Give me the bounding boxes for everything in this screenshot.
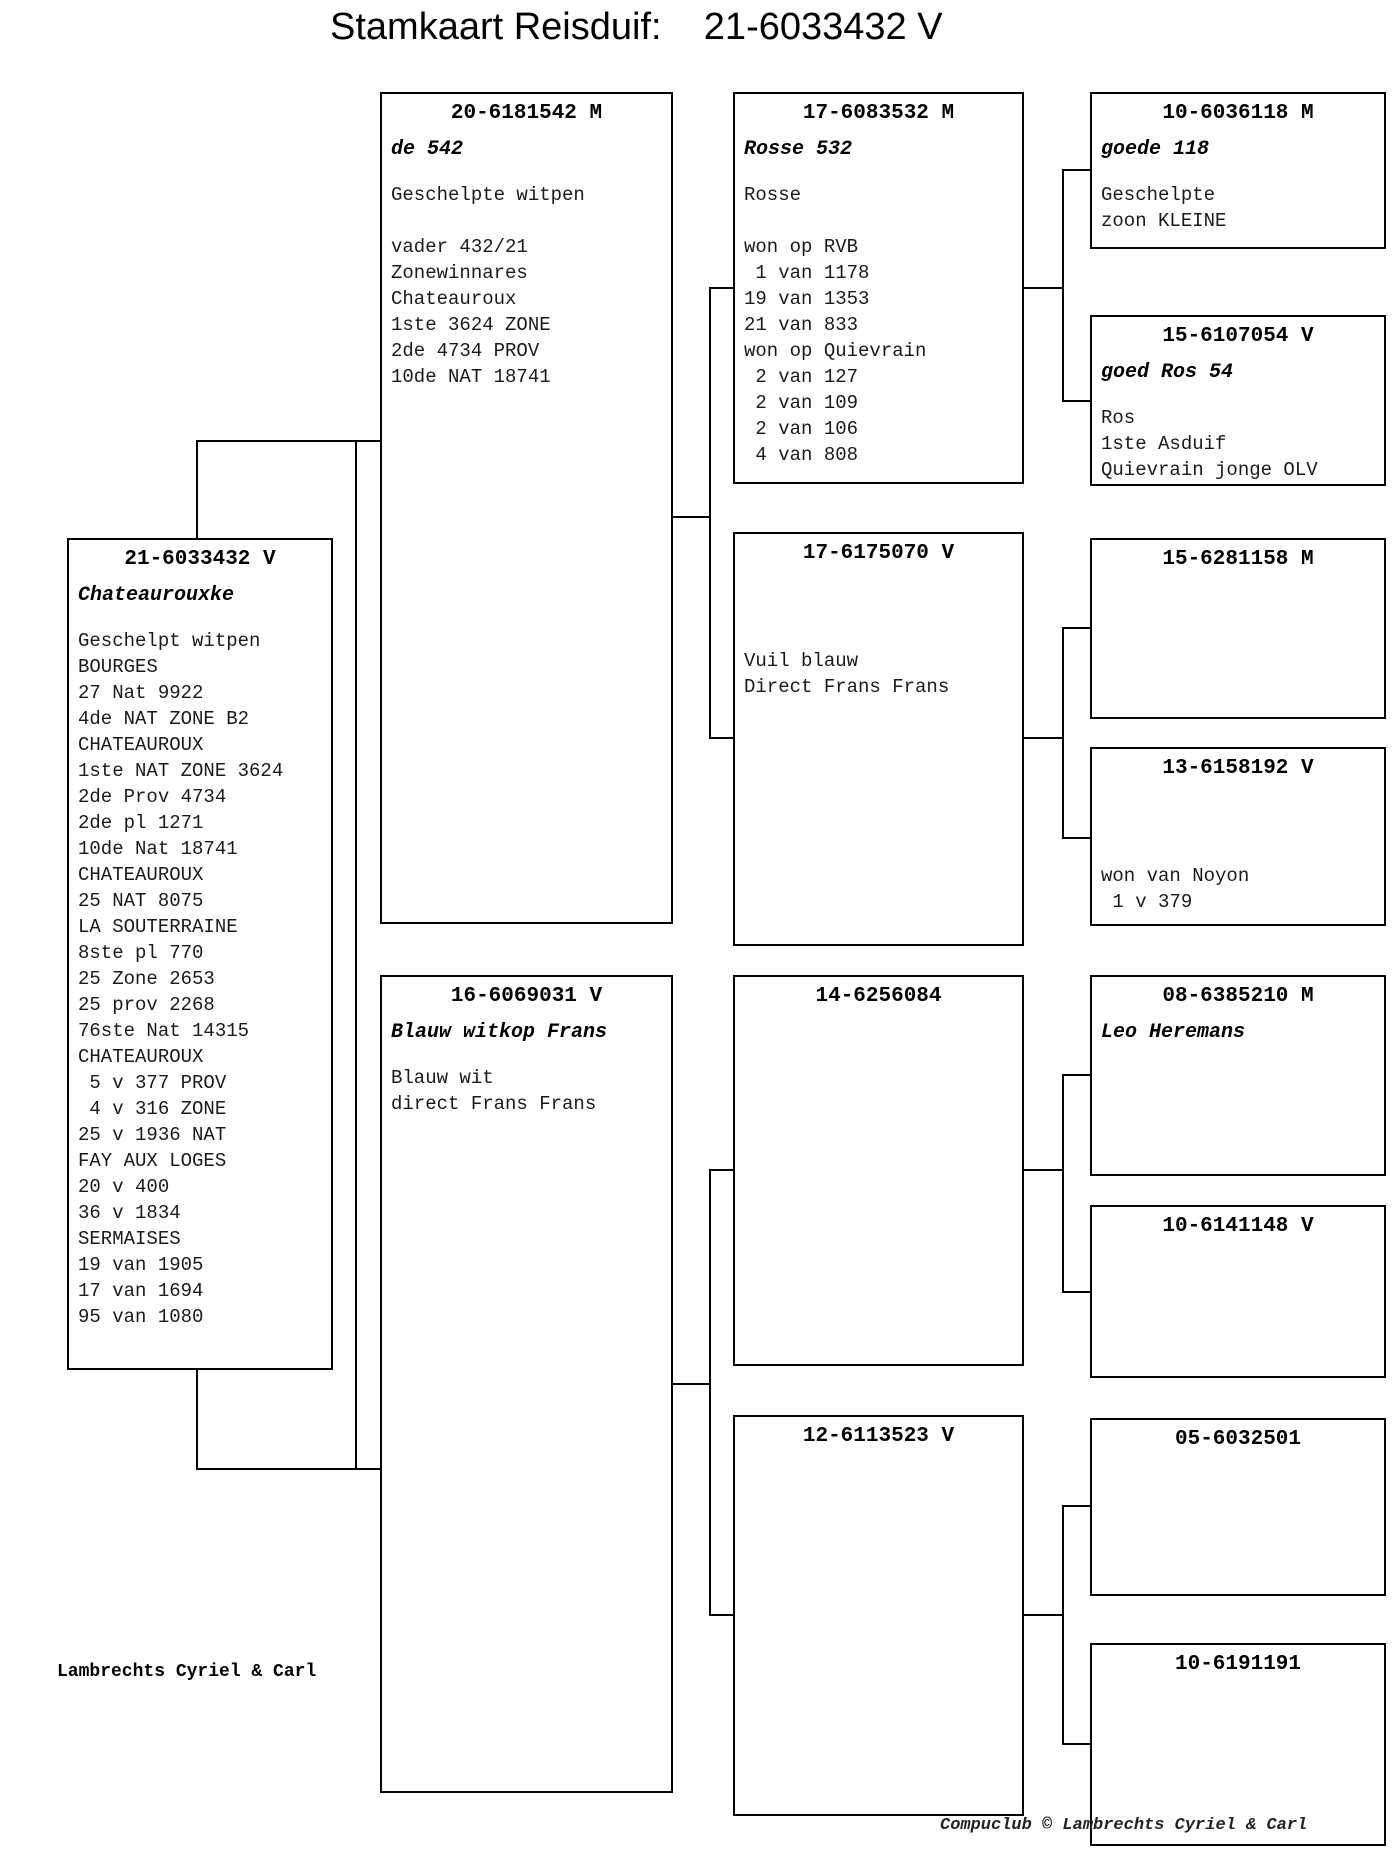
pedigree-box-sd-sire: 15-6281158 M <box>1090 538 1386 719</box>
connector-line <box>673 1383 711 1385</box>
pedigree-box-dd-sire: 05-6032501 <box>1090 1418 1386 1596</box>
pigeon-name: goed Ros 54 <box>1101 361 1233 384</box>
connector-line <box>196 1370 198 1470</box>
pigeon-results: Vuil blauw Direct Frans Frans <box>744 622 1020 700</box>
pigeon-results: Geschelpt witpen BOURGES 27 Nat 9922 4de… <box>78 628 329 1330</box>
pedigree-box-sire-sire: 17-6083532 M Rosse 532 Rosse won op RVB … <box>733 92 1024 484</box>
pigeon-results: Geschelpte zoon KLEINE <box>1101 182 1382 234</box>
connector-line <box>709 1169 733 1171</box>
connector-line <box>1024 737 1062 739</box>
pedigree-box-subject: 21-6033432 V Chateaurouxke Geschelpt wit… <box>67 538 333 1370</box>
connector-line <box>709 287 733 289</box>
pigeon-results: won van Noyon 1 v 379 <box>1101 837 1382 915</box>
ring-number: 17-6083532 M <box>735 102 1022 125</box>
ring-number: 10-6141148 V <box>1092 1215 1384 1238</box>
ring-number: 15-6281158 M <box>1092 548 1384 571</box>
connector-line <box>709 1169 711 1616</box>
ring-number: 12-6113523 V <box>735 1425 1022 1448</box>
ring-number: 16-6069031 V <box>382 985 671 1008</box>
ring-number: 15-6107054 V <box>1092 325 1384 348</box>
pedigree-box-sd-dam: 13-6158192 V won van Noyon 1 v 379 <box>1090 747 1386 926</box>
connector-line <box>1062 1505 1090 1507</box>
ring-number: 21-6033432 V <box>69 548 331 571</box>
connector-line <box>196 1468 380 1470</box>
ring-number: 13-6158192 V <box>1092 757 1384 780</box>
pigeon-results: Ros 1ste Asduif Quievrain jonge OLV <box>1101 405 1382 483</box>
connector-line <box>196 440 380 442</box>
pigeon-name: Rosse 532 <box>744 138 852 161</box>
connector-line <box>1024 1614 1062 1616</box>
pedigree-box-ds-dam: 10-6141148 V <box>1090 1205 1386 1378</box>
pedigree-box-ds-sire: 08-6385210 M Leo Heremans <box>1090 975 1386 1176</box>
connector-line <box>1062 1074 1064 1293</box>
software-credit: Compuclub © Lambrechts Cyriel & Carl <box>940 1816 1307 1835</box>
pigeon-name: Blauw witkop Frans <box>391 1021 607 1044</box>
pigeon-name: goede 118 <box>1101 138 1209 161</box>
connector-line <box>1062 169 1064 402</box>
connector-line <box>1062 627 1064 839</box>
page-title: Stamkaart Reisduif: 21-6033432 V <box>330 6 943 49</box>
pedigree-box-ss-sire: 10-6036118 M goede 118 Geschelpte zoon K… <box>1090 92 1386 249</box>
connector-line <box>709 287 711 739</box>
ring-number: 05-6032501 <box>1092 1428 1384 1451</box>
connector-line <box>709 1614 733 1616</box>
pigeon-name: Leo Heremans <box>1101 1021 1245 1044</box>
pedigree-box-dam: 16-6069031 V Blauw witkop Frans Blauw wi… <box>380 975 673 1793</box>
connector-line <box>1062 400 1090 402</box>
connector-line <box>709 737 733 739</box>
connector-line <box>1062 1074 1090 1076</box>
owner-name: Lambrechts Cyriel & Carl <box>57 1662 316 1682</box>
pedigree-box-dam-dam: 12-6113523 V <box>733 1415 1024 1816</box>
connector-line <box>1062 1291 1090 1293</box>
pigeon-results: Geschelpte witpen vader 432/21 Zonewinna… <box>391 182 669 390</box>
connector-line <box>1062 1743 1090 1745</box>
pedigree-card: Stamkaart Reisduif: 21-6033432 V 21-6033… <box>0 0 1392 1861</box>
pigeon-name: de 542 <box>391 138 463 161</box>
pedigree-box-ss-dam: 15-6107054 V goed Ros 54 Ros 1ste Asduif… <box>1090 315 1386 486</box>
connector-line <box>1024 287 1062 289</box>
connector-line <box>196 440 198 540</box>
ring-number: 20-6181542 M <box>382 102 671 125</box>
connector-line <box>1062 169 1090 171</box>
pigeon-results: Rosse won op RVB 1 van 1178 19 van 1353 … <box>744 182 1020 468</box>
pedigree-box-dam-sire: 14-6256084 <box>733 975 1024 1366</box>
pigeon-results: Blauw wit direct Frans Frans <box>391 1065 669 1117</box>
ring-number: 10-6191191 <box>1092 1653 1384 1676</box>
ring-number: 14-6256084 <box>735 985 1022 1008</box>
connector-line <box>1024 1169 1062 1171</box>
ring-number: 10-6036118 M <box>1092 102 1384 125</box>
pigeon-name: Chateaurouxke <box>78 584 234 607</box>
connector-line <box>1062 627 1090 629</box>
connector-line <box>1062 1505 1064 1745</box>
connector-line <box>355 440 357 1470</box>
ring-number: 17-6175070 V <box>735 542 1022 565</box>
connector-line <box>673 516 711 518</box>
pedigree-box-sire: 20-6181542 M de 542 Geschelpte witpen va… <box>380 92 673 924</box>
pedigree-box-sire-dam: 17-6175070 V Vuil blauw Direct Frans Fra… <box>733 532 1024 946</box>
ring-number: 08-6385210 M <box>1092 985 1384 1008</box>
connector-line <box>1062 837 1090 839</box>
